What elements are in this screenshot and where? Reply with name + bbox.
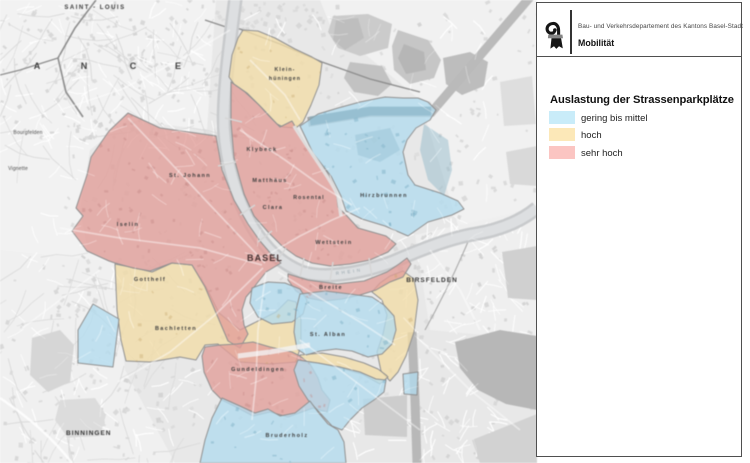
svg-text:SAINT - LOUIS: SAINT - LOUIS (64, 5, 125, 11)
svg-text:Rosental: Rosental (293, 195, 325, 201)
svg-text:E: E (175, 61, 181, 71)
svg-text:Iselin: Iselin (117, 222, 139, 228)
svg-text:BIRSFELDEN: BIRSFELDEN (406, 277, 458, 284)
svg-text:Gotthelf: Gotthelf (134, 277, 166, 283)
svg-text:hüningen: hüningen (269, 76, 301, 82)
svg-text:Bruderholz: Bruderholz (265, 433, 308, 439)
svg-text:Klein-: Klein- (274, 67, 295, 73)
svg-text:Matthäus: Matthäus (252, 178, 287, 184)
svg-text:Clara: Clara (263, 205, 284, 211)
svg-text:St. Alban: St. Alban (310, 332, 346, 338)
svg-text:Gundeldingen: Gundeldingen (231, 367, 285, 373)
svg-text:Bachletten: Bachletten (155, 326, 197, 332)
svg-text:A: A (34, 61, 41, 71)
svg-text:Wettstein: Wettstein (315, 240, 352, 246)
svg-text:N: N (81, 61, 88, 71)
svg-text:Hirzbrunnen: Hirzbrunnen (360, 193, 408, 199)
svg-text:C: C (130, 61, 137, 71)
svg-text:Klybeck: Klybeck (247, 147, 278, 153)
svg-text:Bourgfelden: Bourgfelden (13, 130, 42, 136)
svg-text:BINNINGEN: BINNINGEN (66, 430, 111, 437)
svg-text:Breite: Breite (319, 285, 343, 291)
svg-text:Vignette: Vignette (8, 166, 28, 172)
svg-text:St. Johann: St. Johann (169, 173, 211, 179)
svg-text:BASEL: BASEL (247, 253, 283, 263)
